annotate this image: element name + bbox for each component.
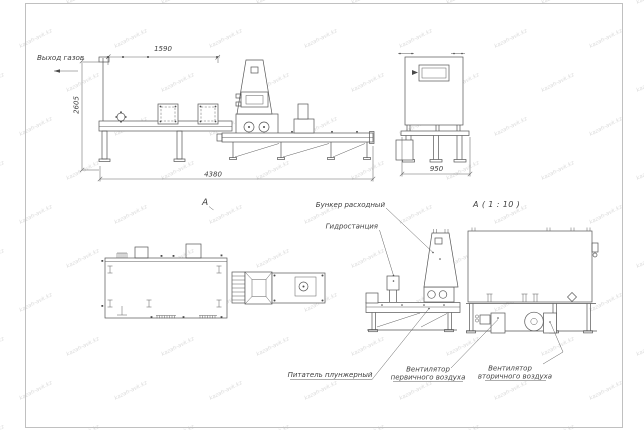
callout-fan-primary-l1: Вентилятор — [406, 366, 450, 374]
dim-950-value: 950 — [430, 165, 444, 173]
top-box-2 — [198, 104, 218, 124]
callout-hydro: Гидростанция — [326, 223, 378, 231]
gas-outlet-label: Выход газов — [37, 53, 84, 62]
drawing-sheet: kazah-avk.kzkazah-avk.kzkazah-avk.kzkaza… — [0, 0, 644, 430]
detail-view — [366, 228, 598, 334]
front-view: 950 — [396, 53, 472, 177]
plan-view — [101, 244, 325, 319]
callout-bunker: Бункер расходный — [316, 201, 386, 209]
side-view: 1590 2605 4380 Выход газов — [37, 45, 375, 182]
dimension-4380: 4380 — [98, 146, 375, 182]
secondary-air-fan — [525, 312, 557, 333]
primary-air-fan — [475, 313, 505, 333]
section-label: A — [201, 198, 214, 210]
dimension-2605: 2605 — [73, 59, 100, 172]
dim-left-value: 2605 — [73, 96, 81, 114]
callout-fan-primary-l2: первичного воздуха — [391, 374, 466, 382]
callout-feeder: Питатель плунжерный — [288, 371, 373, 379]
body-top-bolts — [472, 228, 590, 232]
dim-bottom-value: 4380 — [204, 171, 222, 179]
cad-drawing: 1590 2605 4380 Выход газов — [0, 0, 644, 430]
callout-fan-secondary-l1: Вентилятор — [488, 365, 532, 373]
sheet-frame — [26, 4, 623, 428]
section-label-a: A — [201, 198, 208, 208]
top-box-1 — [158, 104, 178, 124]
dimension-1590: 1590 — [106, 45, 220, 65]
gas-flow-arrow-icon — [54, 69, 78, 72]
callout-fan-secondary-l2: вторичного воздуха — [478, 373, 552, 381]
dim-top-value: 1590 — [154, 45, 172, 53]
detail-view-title: A ( 1 : 10 ) — [472, 200, 520, 209]
hydro-station — [387, 276, 399, 302]
